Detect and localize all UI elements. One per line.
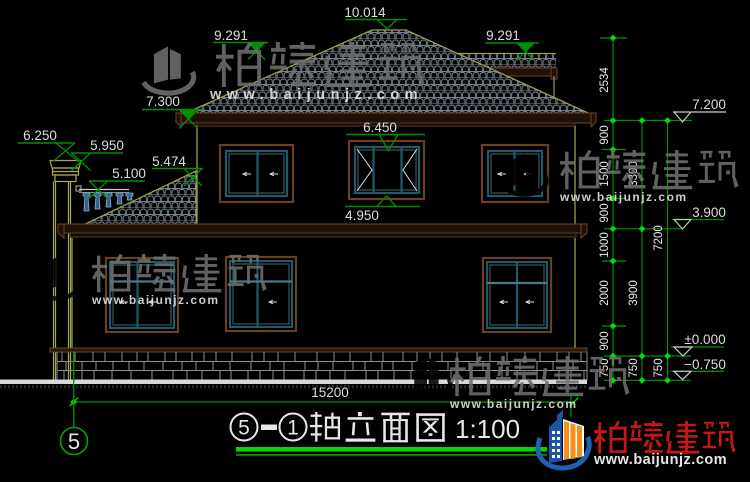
svg-text:5.950: 5.950 [90,138,124,153]
svg-text:www.baijunjz.com: www.baijunjz.com [209,87,423,103]
svg-text:www.baijunjz.com: www.baijunjz.com [449,397,578,411]
svg-text:−0.750: −0.750 [684,357,726,372]
svg-text:750: 750 [653,358,665,377]
svg-text:1:100: 1:100 [455,414,520,444]
svg-text:15200: 15200 [311,385,349,400]
svg-text:2534: 2534 [599,67,611,93]
svg-text:750: 750 [628,358,640,377]
svg-text:900: 900 [599,203,611,222]
svg-text:7.200: 7.200 [692,97,726,112]
svg-text:7.300: 7.300 [146,94,180,109]
svg-text:5: 5 [68,429,80,454]
svg-text:9.291: 9.291 [486,28,520,43]
svg-text:±0.000: ±0.000 [684,332,725,347]
svg-text:www.baijunjz.com: www.baijunjz.com [91,293,220,307]
svg-text:9.291: 9.291 [214,28,248,43]
svg-text:www.baijunjz.com: www.baijunjz.com [559,190,688,204]
svg-text:5.100: 5.100 [112,166,146,181]
svg-text:4.950: 4.950 [345,208,379,223]
svg-text:6.450: 6.450 [363,120,397,135]
svg-text:900: 900 [599,331,611,350]
svg-text:1: 1 [287,417,299,440]
svg-text:7200: 7200 [653,225,665,251]
svg-text:6.250: 6.250 [23,128,57,143]
svg-text:5: 5 [238,417,250,440]
svg-text:2000: 2000 [599,280,611,306]
svg-text:www.baijunjz.com: www.baijunjz.com [593,452,727,468]
svg-text:900: 900 [599,125,611,144]
svg-text:3900: 3900 [628,280,640,306]
svg-text:1000: 1000 [599,232,611,258]
svg-text:3.900: 3.900 [692,205,726,220]
svg-text:10.014: 10.014 [344,5,386,20]
svg-text:5.474: 5.474 [152,154,186,169]
